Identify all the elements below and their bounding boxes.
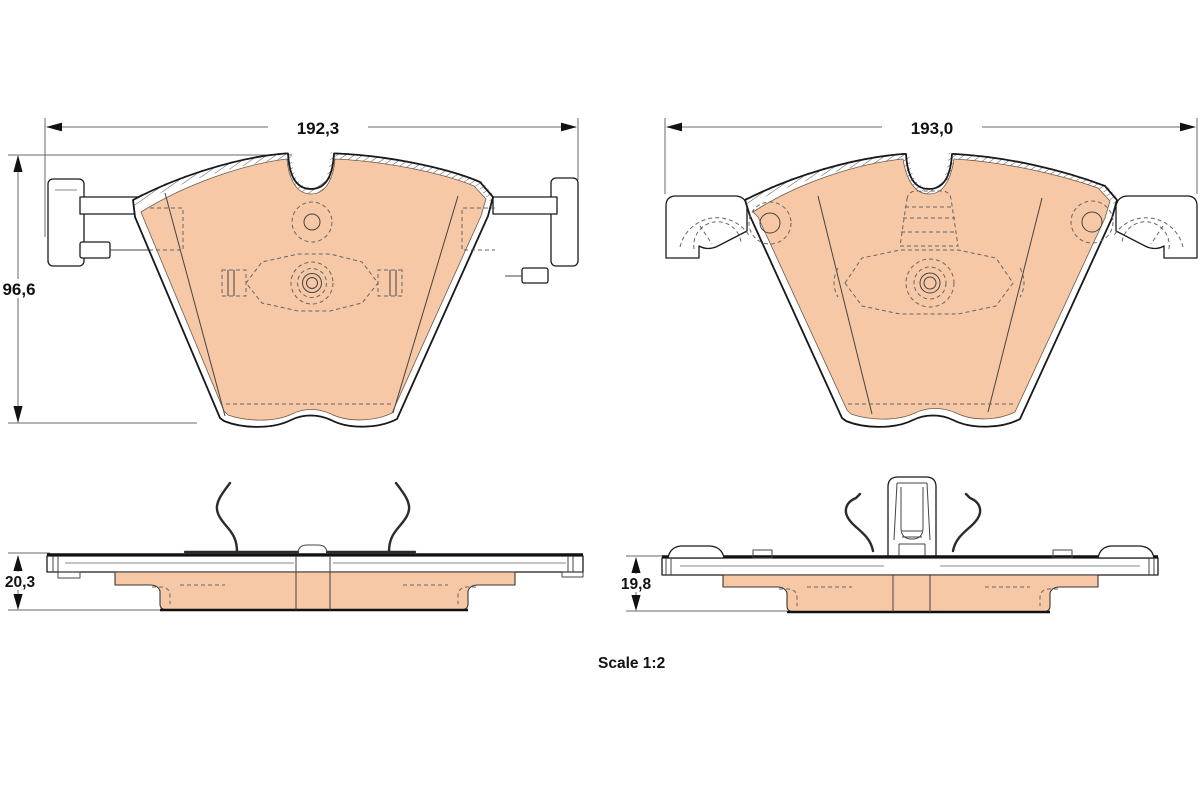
arrowhead-left [666,123,682,132]
arrowhead-up [13,555,22,571]
arrowhead-down [13,594,22,610]
right-pad-front-view: 193,0 [665,118,1197,427]
left-pad-side-view: 20,3 [0,483,583,610]
left-pad-friction-material [141,159,486,420]
arrowhead-left [46,123,62,132]
left-pad-front-view: 192,3 96,6 [0,118,578,427]
left-pad-right-lug [493,178,578,283]
dimension-right-pad-width: 193,0 [665,118,1197,194]
left-pad-height-label: 96,6 [2,280,35,299]
left-pad-retaining-spring [185,483,415,552]
left-pad-left-lug [48,179,150,266]
arrowhead-right [561,123,577,132]
right-pad-left-lug [666,196,750,258]
technical-drawing-page: 192,3 96,6 [0,0,1200,800]
arrowhead-right [1180,123,1196,132]
left-pad-thickness-label: 20,3 [5,574,36,591]
left-pad-width-label: 192,3 [297,119,340,138]
arrowhead-down [631,595,640,611]
right-pad-right-lug [1113,196,1197,258]
brake-pad-drawing: 192,3 96,6 [0,0,1200,800]
right-pad-side-friction [723,575,1098,612]
arrowhead-up [631,557,640,573]
right-pad-width-label: 193,0 [911,119,954,138]
right-pad-side-view: 19,8 [614,477,1158,612]
right-pad-thickness-label: 19,8 [621,576,652,593]
arrowhead-down [13,406,22,423]
scale-label: Scale 1:2 [598,655,665,672]
left-pad-side-friction [115,572,515,610]
arrowhead-up [13,155,22,172]
